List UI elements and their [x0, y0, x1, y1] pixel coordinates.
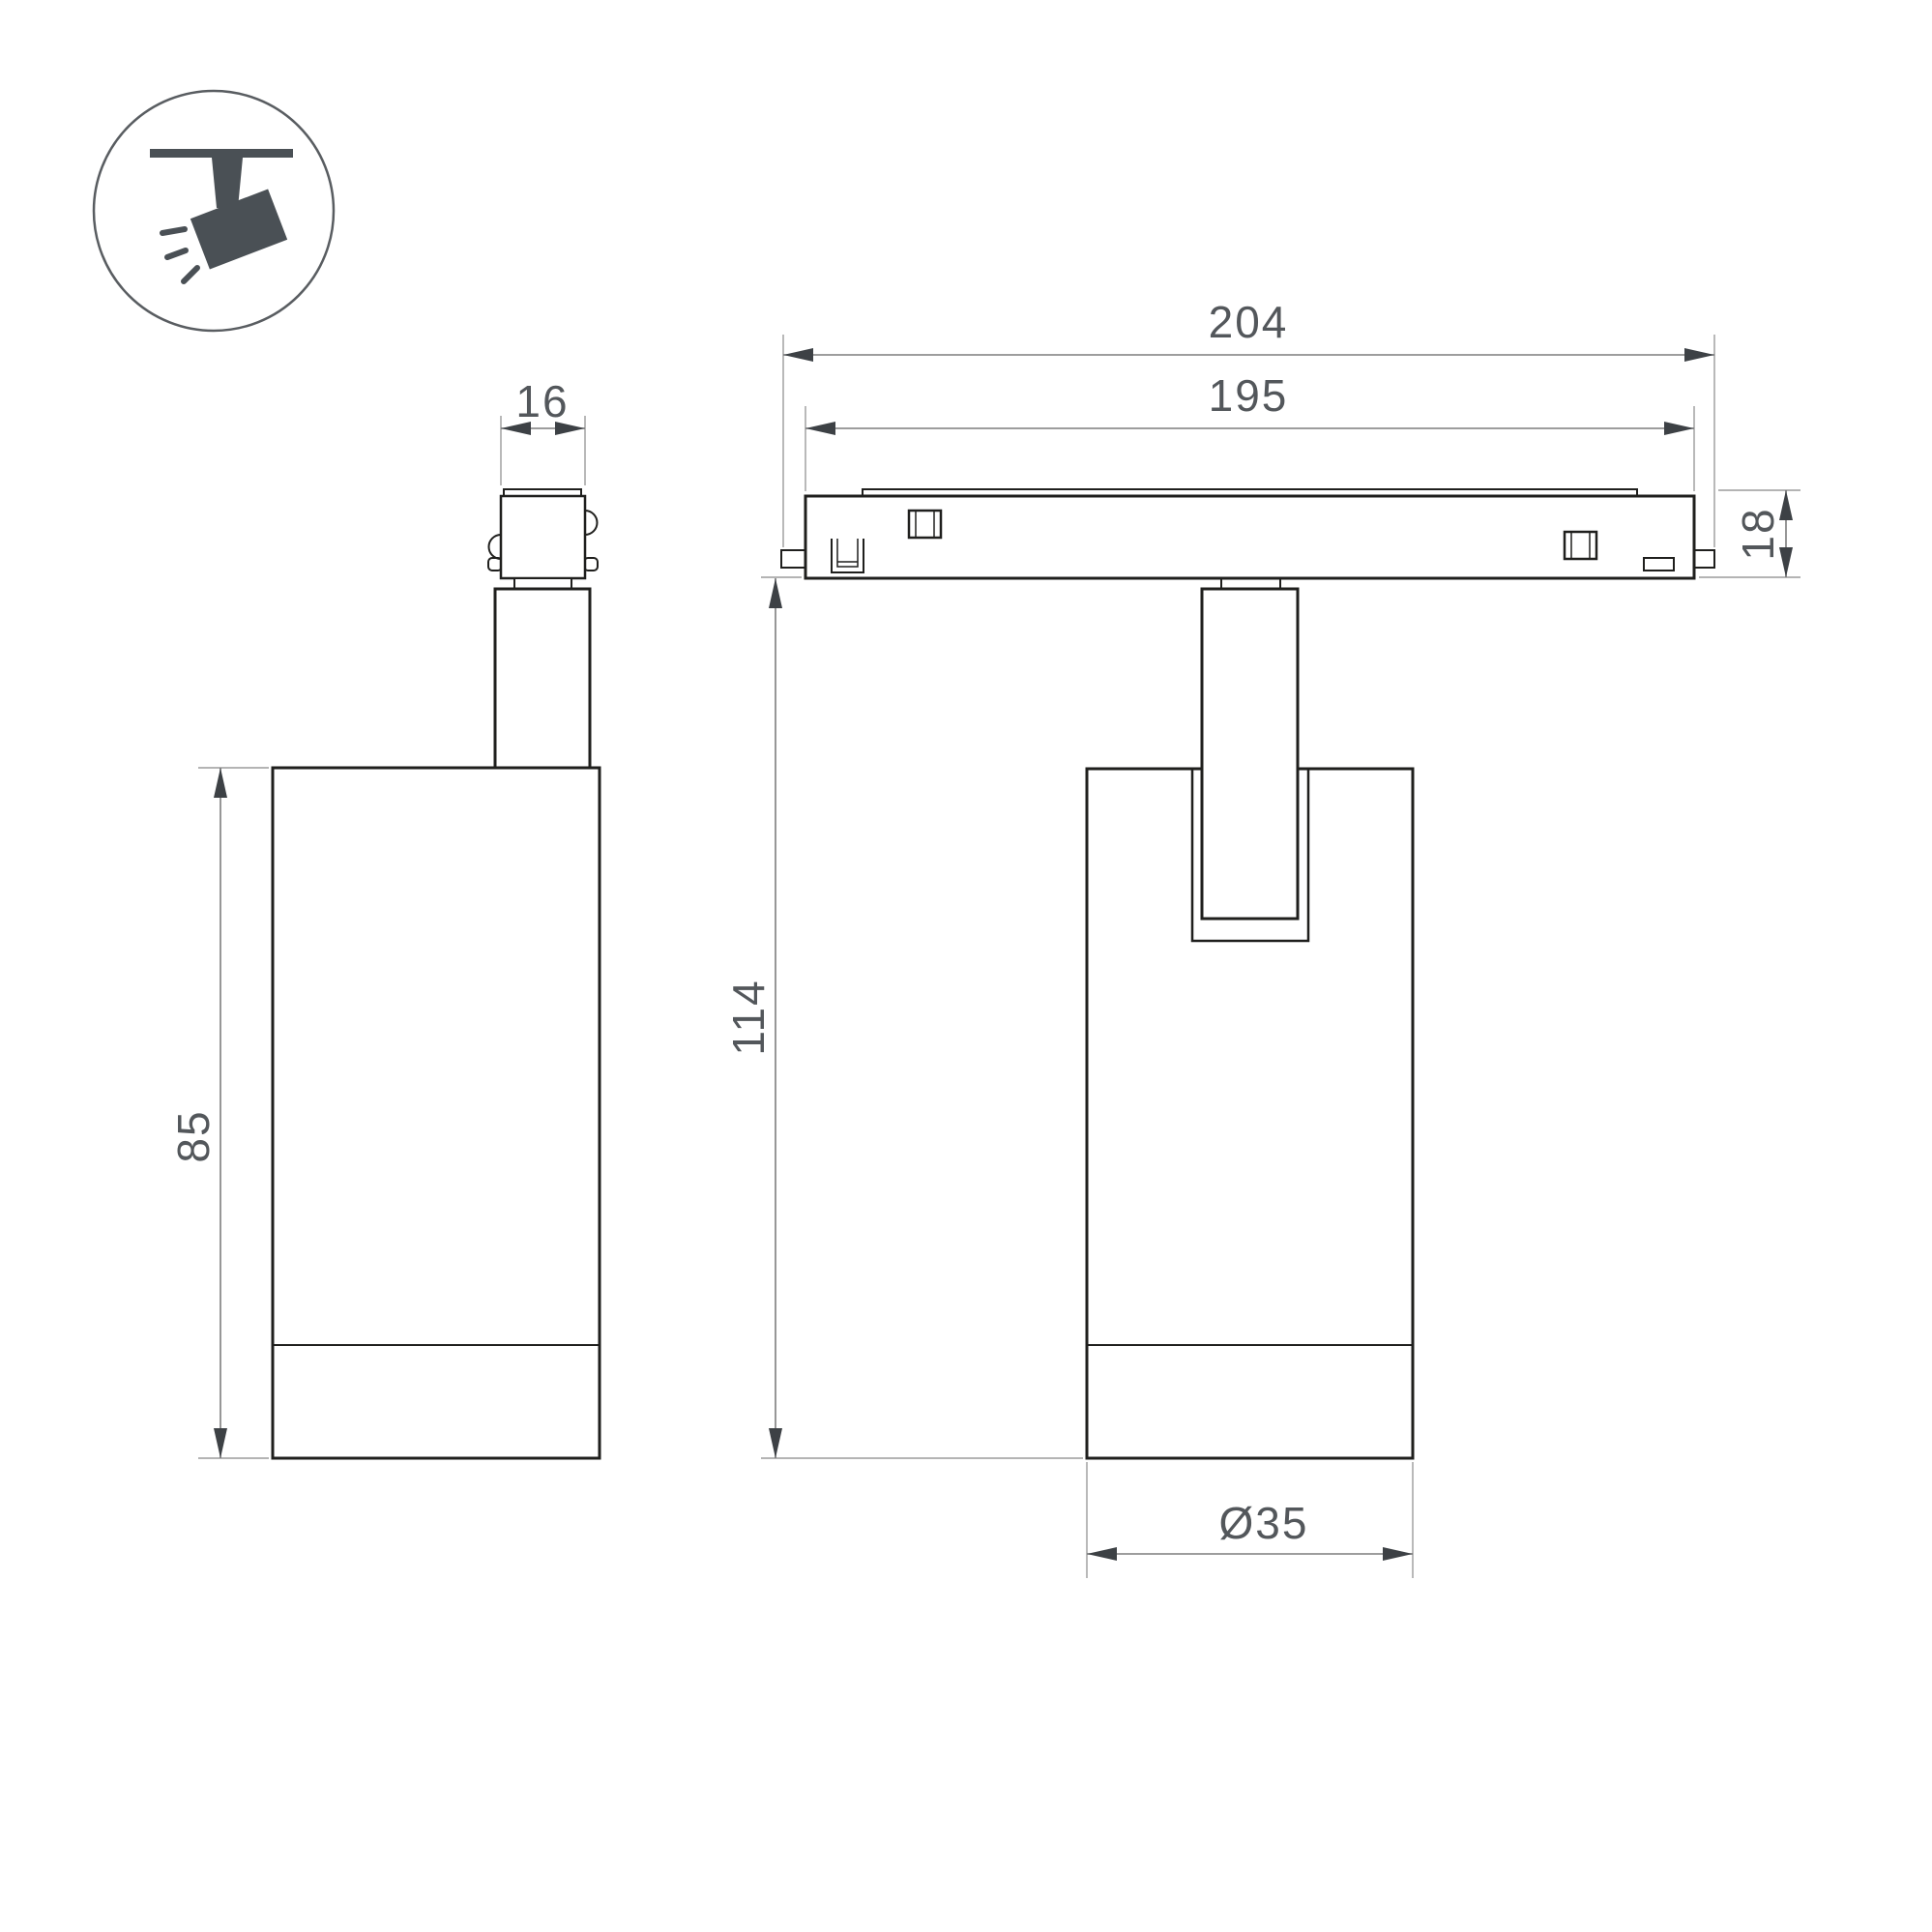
dimension-195: 195 [805, 370, 1694, 491]
icon-light-ray [162, 229, 185, 233]
dimension-value: 85 [168, 1109, 219, 1162]
arrowhead [769, 1428, 782, 1458]
icon-track-bar [150, 149, 293, 158]
track-right-end-tab [1694, 550, 1714, 568]
dimension-value: Ø35 [1219, 1498, 1309, 1548]
arrowhead [769, 578, 782, 608]
adapter-right-screw [585, 511, 598, 535]
side-view [273, 489, 600, 1458]
track-left-end-tab [781, 550, 805, 568]
arrowhead [805, 422, 835, 435]
icon-light-ray [184, 268, 197, 281]
ceiling-track-spotlight-icon [94, 91, 334, 331]
technical-drawing-page: 204 195 16 18 114 85 [0, 0, 1932, 1932]
icon-lamp [190, 189, 287, 269]
dimension-value: 16 [515, 376, 569, 426]
arrowhead [783, 348, 813, 362]
drawing-canvas: 204 195 16 18 114 85 [0, 0, 1932, 1932]
arrowhead [1383, 1547, 1413, 1561]
dimension-value: 114 [723, 979, 774, 1055]
icon-light-ray [167, 250, 186, 257]
dimension-diameter-35: Ø35 [1087, 1462, 1413, 1578]
dimension-value: 18 [1733, 507, 1783, 560]
adapter-left-screw [488, 535, 501, 559]
arrowhead [1087, 1547, 1117, 1561]
adapter-block [501, 496, 585, 578]
track-bar-view [781, 489, 1714, 589]
dimension-value: 195 [1209, 370, 1289, 421]
dimension-value: 204 [1209, 297, 1289, 347]
body [273, 768, 600, 1458]
arrowhead [1664, 422, 1694, 435]
dimension-114: 114 [723, 577, 1083, 1458]
dimension-16: 16 [501, 376, 585, 485]
arrowhead [214, 768, 227, 798]
arrowhead [214, 1428, 227, 1458]
dimension-85: 85 [168, 768, 269, 1458]
icon-stem [212, 158, 243, 208]
stem-front [1202, 589, 1298, 919]
stem-coupling-front [1221, 578, 1280, 589]
stem-coupling [514, 578, 571, 589]
front-view [1087, 589, 1413, 1458]
stem [495, 589, 590, 768]
arrowhead [1684, 348, 1714, 362]
